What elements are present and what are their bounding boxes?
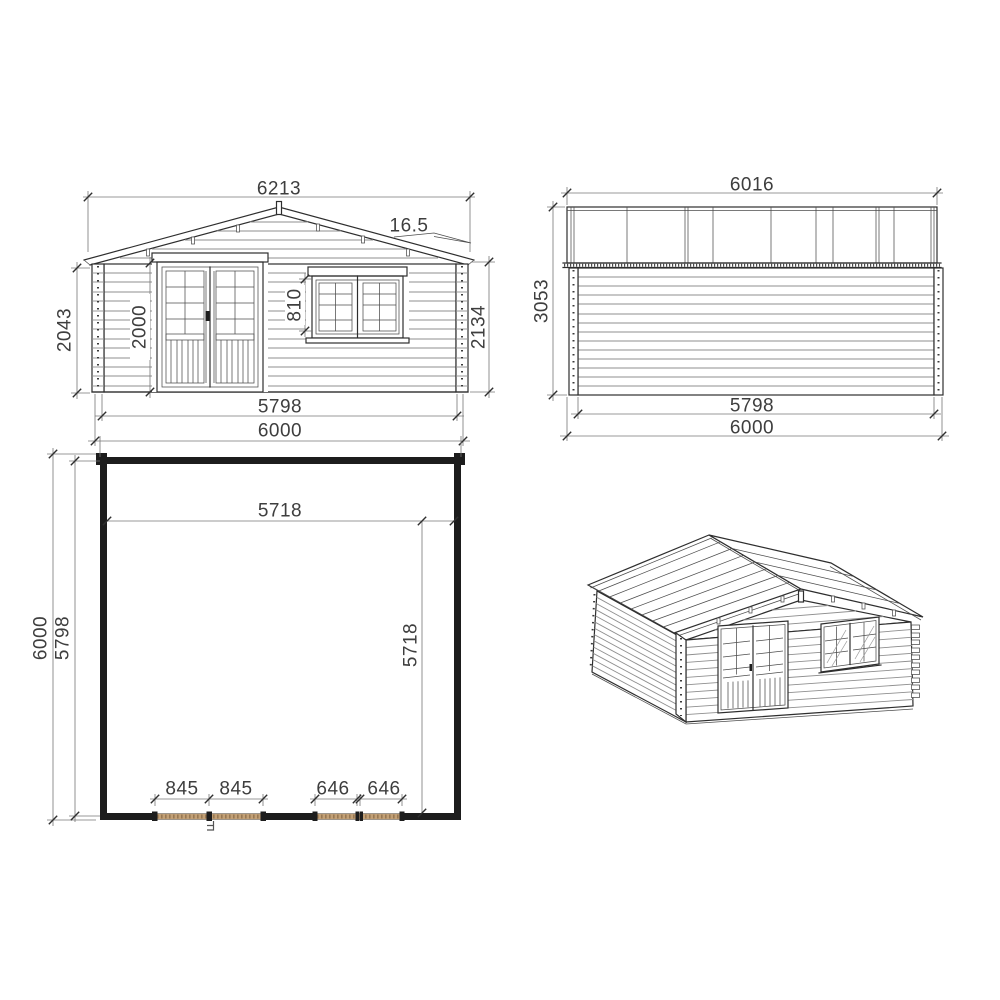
dim-plan-window-left: 646 [316,779,349,800]
dim-side-roof-depth: 6016 [730,175,774,196]
side-left-log-ends [569,268,578,395]
cabin-drawing-svg: 6213 16.5 2043 2000 810 2134 5798 [0,0,1000,1000]
dim-plan-wall-depth: 5798 [53,616,74,660]
dim-plan-overall-depth: 6000 [31,616,52,660]
dim-side-overall-depth: 6000 [730,418,774,439]
dim-plan-window-right: 646 [367,779,400,800]
iso-right-log-ends [912,625,920,698]
dim-plan-door-left: 845 [165,779,198,800]
side-elevation-view: 6016 3053 5798 6000 [532,175,950,442]
floor-plan-view: 5718 5718 6000 5798 845 845 646 646 [31,436,466,830]
iso-window [819,617,881,673]
dim-front-window-height: 810 [285,288,306,321]
dim-side-wall-depth: 5798 [730,396,774,417]
front-left-log-ends [92,264,104,392]
dim-front-right-height: 2134 [469,305,490,349]
isometric-view [588,535,923,724]
door-swing-marker [207,821,214,830]
plan-window-opening [313,812,405,822]
iso-door [718,621,788,713]
plan-door-opening [152,812,266,831]
plan-dimensions: 5718 5718 6000 5798 845 845 646 646 [31,436,462,826]
roof-finial [277,202,282,215]
door-handle [206,311,210,321]
dim-plan-door-right: 845 [219,779,252,800]
dim-front-roof-width: 6213 [257,179,301,200]
iso-roof-finial [799,591,804,602]
window-sill [306,338,409,343]
dim-front-door-height: 2000 [130,305,151,349]
dim-plan-interior-depth: 5718 [401,623,422,667]
dim-front-roof-angle: 16.5 [390,216,429,237]
dim-front-left-height: 2043 [55,308,76,352]
side-roof [563,207,941,268]
iso-corner-log-ends [676,633,686,722]
technical-drawing-sheet: 6213 16.5 2043 2000 810 2134 5798 [0,0,1000,1000]
side-wall [569,268,943,395]
front-elevation-view: 6213 16.5 2043 2000 810 2134 5798 [55,179,496,447]
front-window [306,267,409,343]
front-double-door [152,253,268,392]
front-right-log-ends [456,264,468,392]
iso-door-handle [750,664,753,671]
dim-plan-interior-width: 5718 [258,501,302,522]
side-right-log-ends [934,268,943,395]
dim-front-wall-width: 5798 [258,397,302,418]
dim-side-total-height: 3053 [532,279,553,323]
dim-front-overall-width: 6000 [258,421,302,442]
